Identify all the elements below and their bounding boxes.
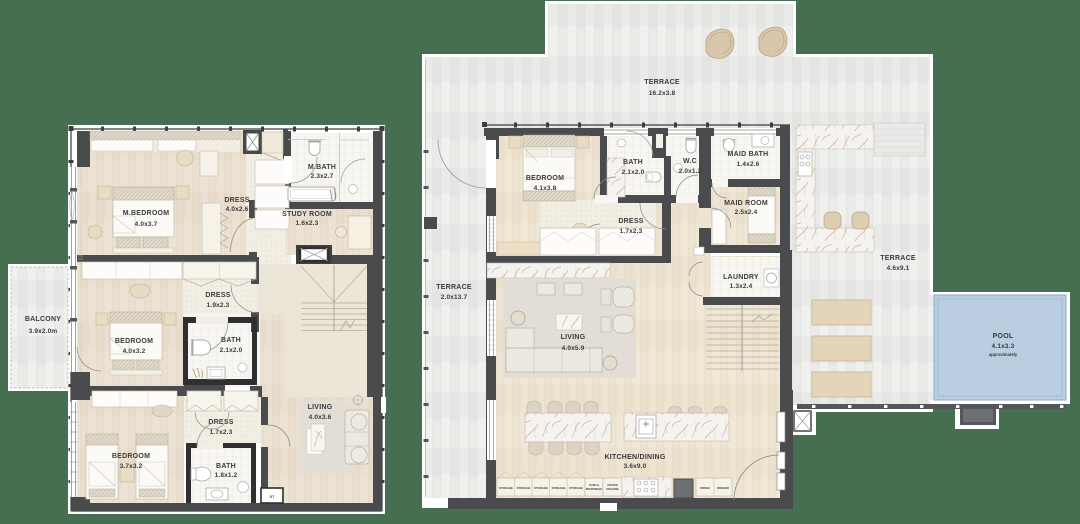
svg-text:3.6x9.0: 3.6x9.0 [624, 463, 647, 470]
svg-text:4.1x3.3: 4.1x3.3 [992, 343, 1015, 350]
svg-text:STORAGE: STORAGE [499, 486, 513, 490]
svg-text:COFFEE: COFFEE [607, 483, 618, 487]
svg-text:4.6x9.1: 4.6x9.1 [887, 265, 910, 272]
svg-text:1.7x2.3: 1.7x2.3 [620, 228, 643, 235]
svg-text:approximately: approximately [989, 352, 1018, 357]
svg-text:STORAGE: STORAGE [534, 486, 548, 490]
svg-text:4.0x5.9: 4.0x5.9 [562, 345, 585, 352]
svg-text:3.7x3.2: 3.7x3.2 [120, 463, 143, 470]
svg-text:TERRACE: TERRACE [644, 79, 680, 86]
svg-text:MACHINE: MACHINE [606, 487, 618, 491]
svg-text:4.0x3.7: 4.0x3.7 [135, 221, 158, 228]
svg-text:OVEN &: OVEN & [589, 483, 599, 487]
svg-text:TERRACE: TERRACE [880, 255, 916, 262]
svg-text:LIVING: LIVING [561, 334, 586, 341]
svg-text:MICROWAVE: MICROWAVE [586, 487, 602, 491]
svg-text:STORAGE: STORAGE [517, 486, 531, 490]
svg-text:2.5x2.4: 2.5x2.4 [735, 209, 758, 216]
svg-text:BATH: BATH [221, 337, 241, 344]
svg-text:STORAGE: STORAGE [552, 486, 566, 490]
svg-text:2.1x2.0: 2.1x2.0 [220, 347, 243, 354]
svg-text:FREEZER: FREEZER [717, 486, 729, 490]
svg-text:16.2x3.8: 16.2x3.8 [649, 90, 676, 97]
svg-text:2.0x13.7: 2.0x13.7 [441, 294, 468, 301]
svg-text:1.4x2.6: 1.4x2.6 [737, 161, 760, 168]
svg-text:M.BATH: M.BATH [308, 164, 336, 171]
svg-text:DRESS: DRESS [208, 419, 233, 426]
svg-text:M.BEDROOM: M.BEDROOM [123, 210, 170, 217]
svg-text:4.0x2.6: 4.0x2.6 [226, 206, 249, 213]
svg-text:BEDROOM: BEDROOM [112, 453, 150, 460]
svg-text:1.3x2.4: 1.3x2.4 [730, 283, 753, 290]
svg-text:TERRACE: TERRACE [436, 284, 472, 291]
svg-text:1.7x2.3: 1.7x2.3 [210, 429, 233, 436]
svg-text:FRIDGE: FRIDGE [700, 486, 710, 490]
svg-text:BEDROOM: BEDROOM [115, 338, 153, 345]
svg-text:DRESS: DRESS [618, 218, 643, 225]
svg-text:POOL: POOL [993, 333, 1014, 340]
svg-text:BATH: BATH [623, 159, 643, 166]
svg-text:LIVING: LIVING [308, 404, 333, 411]
svg-text:3.9x2.0m: 3.9x2.0m [29, 328, 58, 335]
svg-text:DRESS: DRESS [205, 292, 230, 299]
svg-text:4.0x3.2: 4.0x3.2 [123, 348, 146, 355]
svg-text:2.0x1.2: 2.0x1.2 [679, 168, 702, 175]
svg-text:BEDROOM: BEDROOM [526, 175, 564, 182]
svg-text:4.0x3.6: 4.0x3.6 [309, 414, 332, 421]
svg-text:DRESS: DRESS [224, 197, 249, 204]
svg-text:1.9x2.3: 1.9x2.3 [207, 302, 230, 309]
svg-text:4.1x3.8: 4.1x3.8 [534, 185, 557, 192]
svg-text:MAID ROOM: MAID ROOM [724, 200, 768, 207]
svg-text:BATH: BATH [216, 463, 236, 470]
svg-text:2.1x2.0: 2.1x2.0 [622, 169, 645, 176]
svg-text:MAID BATH: MAID BATH [727, 151, 768, 158]
svg-text:STUDY ROOM: STUDY ROOM [282, 211, 332, 218]
svg-text:1.6x2.3: 1.6x2.3 [296, 220, 319, 227]
svg-text:2.3x2.7: 2.3x2.7 [311, 173, 334, 180]
svg-text:1.8x1.2: 1.8x1.2 [215, 472, 238, 479]
svg-text:LAUNDRY: LAUNDRY [723, 274, 759, 281]
svg-text:W.C: W.C [683, 158, 697, 165]
svg-text:STORAGE: STORAGE [569, 486, 583, 490]
svg-text:KITCHEN/DINING: KITCHEN/DINING [604, 454, 665, 461]
svg-text:BALCONY: BALCONY [25, 316, 61, 323]
